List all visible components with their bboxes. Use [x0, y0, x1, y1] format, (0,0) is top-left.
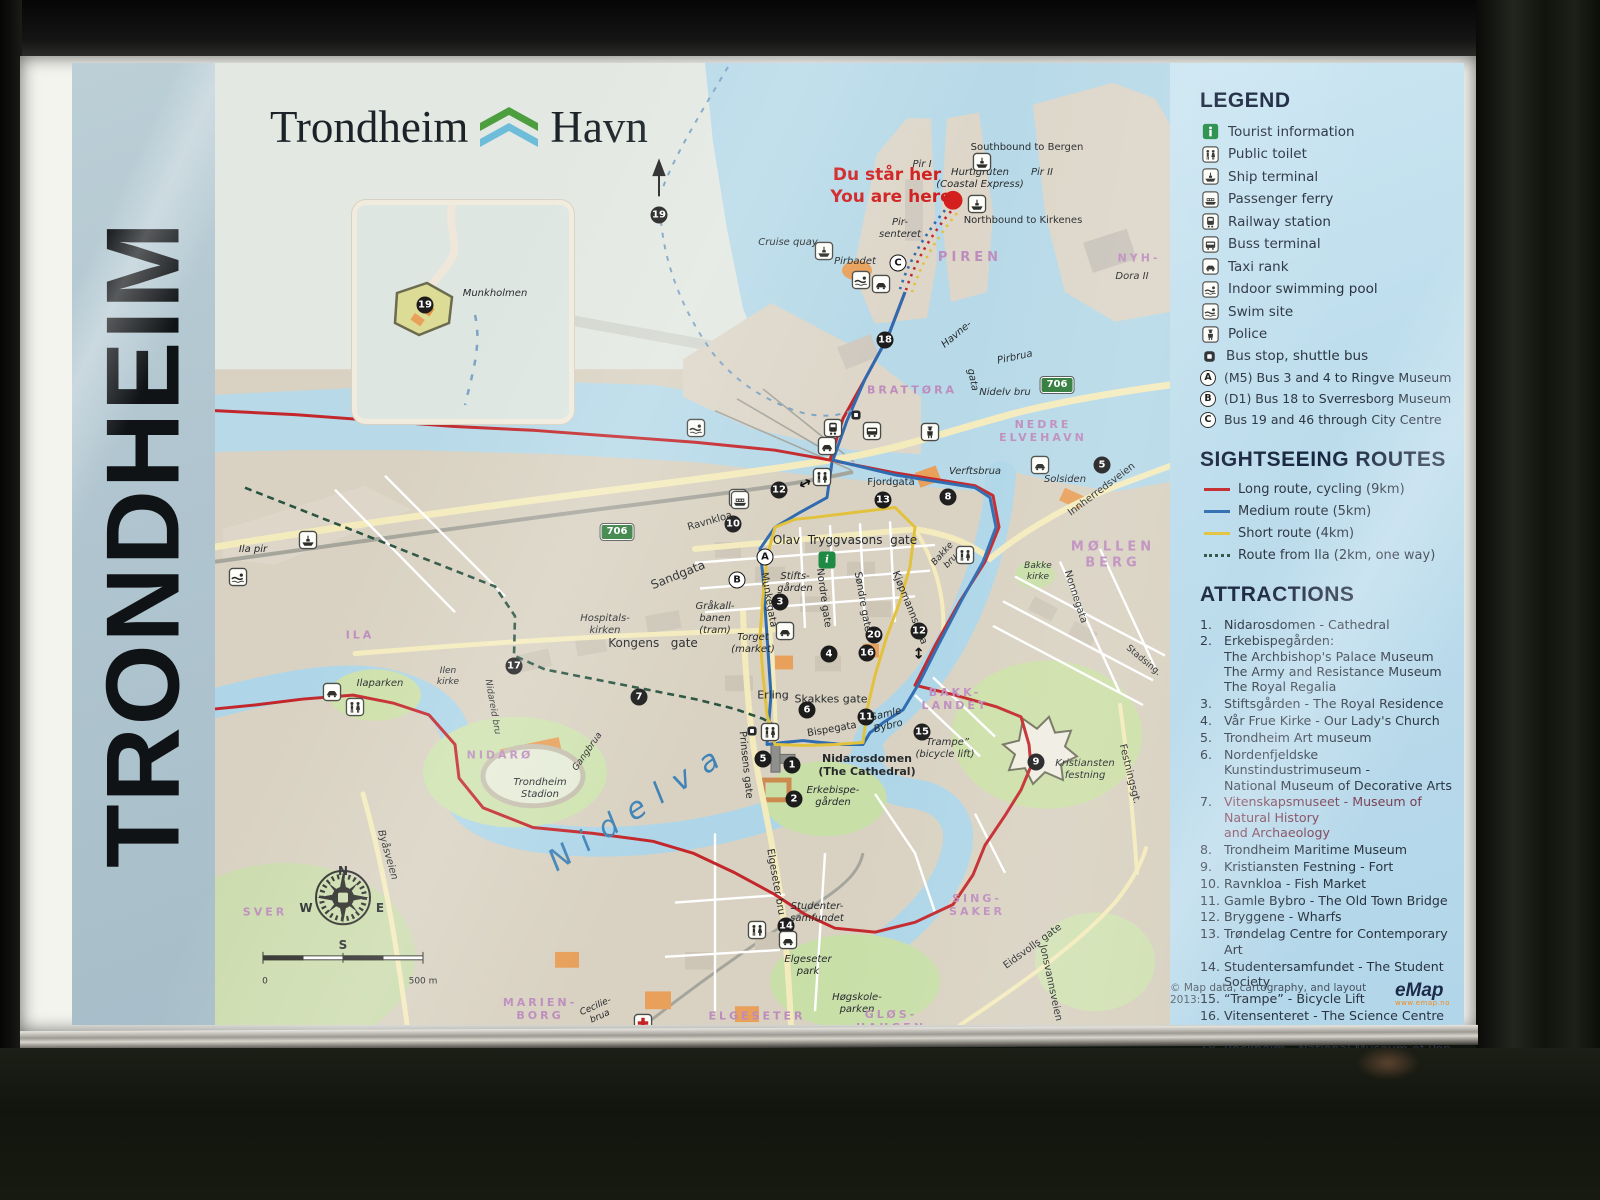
marker-5-solsiden: 5 — [1094, 457, 1111, 474]
label-nidarosdomen: Nidarosdomen (The Cathedral) — [818, 752, 915, 778]
marker-3: 3 — [772, 594, 789, 611]
legend-heading: LEGEND — [1200, 89, 1452, 113]
marker-2: 2 — [786, 791, 803, 808]
scale-500: 500 m — [409, 977, 438, 988]
vertical-title-strip: TRONDHEIM — [72, 63, 215, 1025]
legend-item: Ship terminal — [1202, 168, 1452, 185]
label-solsiden: Solsiden — [1044, 474, 1086, 486]
emap-logo: eMap www.emap.no — [1395, 981, 1450, 1007]
routes-heading: SIGHTSEEING ROUTES — [1200, 448, 1452, 472]
legend-item: Tourist information — [1202, 123, 1452, 140]
label-munkholmen: Munkholmen — [463, 288, 528, 300]
label-erkebispegarden: Erkebispe- gården — [807, 785, 860, 809]
attraction-item: 8.Trondheim Maritime Museum — [1200, 842, 1452, 857]
marker-5: 5 — [755, 751, 772, 768]
label-nyhavna: NYH- — [1118, 251, 1161, 264]
marker-9: 9 — [1028, 754, 1045, 771]
label-torget: Torget (market) — [731, 632, 775, 656]
label-stadion: Trondheim Stadion — [513, 777, 566, 801]
attraction-item: 5.Trondheim Art museum — [1200, 730, 1452, 745]
marker-7: 7 — [631, 689, 648, 706]
bus-route-b-badge: B — [1200, 391, 1216, 407]
map-title: Trondheim Havn — [270, 101, 648, 153]
indoor-swimming-pool-icon — [1203, 281, 1218, 296]
route-legend-item: Long route, cycling (9km) — [1204, 482, 1452, 497]
marker-8: 8 — [940, 489, 957, 506]
marker-16: 16 — [859, 645, 876, 662]
sign-frame-right — [1476, 0, 1600, 1200]
public-toilet-icon — [1203, 146, 1218, 161]
marker-15: 15 — [914, 724, 931, 741]
map-title-right: Havn — [550, 101, 647, 153]
photo-of-map-sign: TRONDHEIM — [0, 0, 1600, 1200]
label-cruise-quay: Cruise quay — [758, 237, 817, 249]
label-verftsbrua: Verftsbrua — [949, 466, 1001, 478]
passenger-ferry-icon — [1203, 191, 1218, 206]
label-you-are-here: You are here — [830, 187, 951, 207]
marker-18: 18 — [877, 332, 894, 349]
attraction-item: 4.Vår Frue Kirke - Our Lady's Church — [1200, 713, 1452, 728]
label-nidaro: NIDARØ — [467, 748, 534, 761]
attraction-item: 11.Gamle Bybro - The Old Town Bridge — [1200, 893, 1452, 908]
tourist-info-badge: i — [819, 552, 836, 569]
swimming-pool-icon — [852, 271, 869, 288]
vertical-title: TRONDHEIM — [72, 63, 215, 1025]
ship-terminal-icon — [973, 153, 990, 170]
label-kongens-gate: Kongens gate — [608, 636, 698, 650]
munkholmen-inset — [352, 200, 574, 424]
public-toilet-icon — [956, 546, 973, 563]
bus-terminal-icon — [1203, 236, 1218, 251]
label-ila-pir: Ila pir — [239, 544, 267, 556]
public-toilet-icon — [761, 723, 778, 740]
marker-13: 13 — [875, 492, 892, 509]
attractions-heading: ATTRACTIONS — [1200, 583, 1452, 607]
sign-frame-top — [0, 0, 1600, 56]
attraction-item: 12.Bryggene - Wharfs — [1200, 909, 1452, 924]
legend-item: Buss terminal — [1202, 236, 1452, 253]
hospital-icon — [634, 1014, 651, 1025]
bus-route-a-badge: A — [1200, 370, 1216, 386]
railway-station-icon — [1203, 214, 1218, 229]
legend-item: Bus stop, shuttle bus — [1202, 348, 1452, 364]
legend-bus-route: C Bus 19 and 46 through City Centre — [1200, 412, 1452, 428]
label-ilaparken: Ilaparken — [357, 678, 404, 690]
taxi-rank-icon — [1031, 456, 1048, 473]
legend-item: Public toilet — [1202, 146, 1452, 163]
taxi-rank-icon — [1203, 259, 1218, 274]
label-fjordgata: Fjordgata — [867, 477, 914, 489]
marker-17: 17 — [506, 658, 523, 675]
taxi-rank-icon — [323, 683, 340, 700]
label-kristiansten: Kristiansten festning — [1055, 758, 1114, 782]
route-legend-item: Medium route (5km) — [1204, 504, 1452, 519]
label-nedre-elvehavn: NEDRE ELVEHAVN — [999, 418, 1087, 444]
route-swatch-medium — [1204, 510, 1230, 513]
inset-ferry-route — [465, 315, 477, 405]
inset-shoal — [429, 205, 455, 297]
map-sign: TRONDHEIM — [20, 56, 1476, 1032]
marker-1: 1 — [784, 757, 801, 774]
marker-19-arrow: 19 — [651, 207, 668, 224]
label-bakklandet: BAKK- LANDET — [922, 686, 989, 712]
label-pir1: Pir I — [912, 159, 931, 171]
marker-10: 10 — [725, 516, 742, 533]
compass-w: W — [299, 901, 312, 915]
label-northbound: Northbound to Kirkenes — [964, 215, 1083, 227]
attraction-item: 9.Kristiansten Festning - Fort — [1200, 859, 1452, 874]
label-brattora: BRATTØRA — [867, 383, 957, 396]
marker-12b: 12 — [911, 623, 928, 640]
police-icon — [1203, 326, 1218, 341]
swim-site-icon — [687, 419, 704, 436]
passenger-ferry-icon — [731, 491, 748, 508]
scale-zero: 0 — [262, 977, 268, 988]
legend-panel: LEGEND Tourist information Public toilet… — [1170, 63, 1464, 1025]
label-hospitalskirken: Hospitals- kirken — [580, 613, 630, 637]
label-mollenberg: MØLLEN BERG — [1071, 539, 1155, 570]
label-sverresborg: SVER — [243, 905, 287, 918]
tourist-information-icon — [1203, 124, 1218, 139]
bus-route-c-badge: C — [1200, 412, 1216, 428]
compass-n: N — [338, 864, 348, 878]
route-swatch-ila — [1204, 554, 1230, 557]
label-pir2: Pir II — [1031, 167, 1053, 179]
ship-terminal-icon — [299, 531, 316, 548]
marker-12: 12 — [771, 482, 788, 499]
ship-terminal-icon — [1203, 169, 1218, 184]
route-swatch-long — [1204, 488, 1230, 491]
railway-station-icon — [824, 419, 841, 436]
sign-frame-left — [0, 0, 22, 1200]
marker-19-inset: 19 — [417, 297, 434, 314]
legend-item: Swim site — [1202, 303, 1452, 320]
label-elgeseter-park: Elgeseter park — [784, 954, 831, 978]
legend-item: Indoor swimming pool — [1202, 281, 1452, 298]
public-toilet-icon — [748, 921, 765, 938]
marker-bus-a: A — [757, 549, 774, 566]
compass-s: S — [339, 938, 348, 952]
marker-bus-b: B — [729, 572, 746, 589]
attraction-item: 10.Ravnkloa - Fish Market — [1200, 876, 1452, 891]
road-706-badge-east: 706 — [1041, 377, 1074, 393]
label-pirbadet: Pirbadet — [834, 256, 876, 268]
label-pirsenteret: Pir- senteret — [879, 217, 921, 241]
public-toilet-icon — [346, 698, 363, 715]
frame-smudge — [1356, 1046, 1420, 1080]
label-nidelv-bru: Nidelv bru — [979, 387, 1030, 399]
credit-text: © Map data, cartography, and layout 2013… — [1170, 982, 1387, 1006]
bus-stop-icon — [851, 410, 860, 419]
label-marienborg: MARIEN- BORG — [503, 996, 577, 1022]
attraction-item: 3.Stiftsgården - The Royal Residence — [1200, 696, 1452, 711]
route-swatch-short — [1204, 532, 1230, 535]
label-singsaker: SING- SAKER — [949, 892, 1005, 918]
ship-terminal-icon — [968, 195, 985, 212]
label-bakke-kirke: Bakke kirke — [1024, 561, 1052, 583]
taxi-rank-icon — [818, 437, 835, 454]
public-toilet-icon — [813, 468, 830, 485]
label-ilen-kirke: Ilen kirke — [437, 666, 459, 688]
map-title-left: Trondheim — [270, 101, 468, 153]
swim-site-icon — [1203, 304, 1218, 319]
marker-20: 20 — [866, 627, 883, 644]
marker-12b-arrow-icon: ↔ — [910, 647, 928, 660]
attraction-item: 1.Nidarosdomen - Cathedral — [1200, 617, 1452, 632]
attraction-item: 6.Nordenfjeldske Kunstindustrimuseum - N… — [1200, 747, 1452, 793]
cruise-quay-icon — [815, 242, 832, 259]
marker-11: 11 — [858, 709, 875, 726]
taxi-rank-icon — [779, 931, 796, 948]
legend-bus-route: B (D1) Bus 18 to Sverresborg Museum — [1200, 391, 1452, 407]
label-ila: ILA — [346, 628, 375, 641]
harbour-logo-icon — [478, 105, 540, 149]
route-legend-item: Route from Ila (2km, one way) — [1204, 548, 1452, 563]
marker-4: 4 — [821, 646, 838, 663]
attraction-item: 16.Vitensenteret - The Science Centre — [1200, 1008, 1452, 1023]
taxi-rank-icon — [872, 275, 889, 292]
label-erling: Erling — [757, 688, 789, 701]
legend-item: Railway station — [1202, 213, 1452, 230]
bus-terminal-icon — [863, 422, 880, 439]
label-olav-tryggvasons: Olav Tryggvasons gate — [773, 533, 917, 547]
attraction-item: 13.Trøndelag Centre for Contemporary Art — [1200, 926, 1452, 957]
legend-item: Police — [1202, 326, 1452, 343]
legend-item: Taxi rank — [1202, 258, 1452, 275]
legend-item: Passenger ferry — [1202, 191, 1452, 208]
police-icon — [921, 423, 938, 440]
legend-bus-route: A (M5) Bus 3 and 4 to Ringve Museum — [1200, 370, 1452, 386]
attraction-item: 2.Erkebispegården: The Archbishop's Pala… — [1200, 633, 1452, 694]
city-map: Trondheim Havn — [215, 63, 1170, 1025]
swim-site-icon — [229, 568, 246, 585]
label-trampe: “Trampe” (bicycle lift) — [916, 737, 975, 761]
bus-stop-icon — [747, 726, 756, 735]
attraction-item: 7.Vitenskapsmuseet - Museum of Natural H… — [1200, 794, 1452, 840]
bus-stop-icon — [1204, 351, 1215, 362]
map-credit: © Map data, cartography, and layout 2013… — [1170, 981, 1450, 1007]
label-dora: Dora II — [1115, 271, 1148, 283]
road-706-badge-west: 706 — [601, 524, 634, 540]
label-grakallbanen: Gråkall- banen (tram) — [695, 601, 734, 637]
label-stiftsgarden: Stifts- gården — [777, 571, 812, 595]
compass-e: E — [376, 901, 384, 915]
marker-bus-c: C — [890, 255, 907, 272]
label-studentersamfundet: Studenter- samfundet — [790, 901, 844, 925]
label-elgeseter: ELGESETER — [709, 1009, 806, 1022]
taxi-rank-icon — [776, 622, 793, 639]
route-legend-item: Short route (4km) — [1204, 526, 1452, 541]
marker-6: 6 — [799, 702, 816, 719]
label-piren: PIREN — [938, 250, 1002, 266]
label-gloshaugen: GLØS- HAUGEN — [856, 1008, 926, 1025]
